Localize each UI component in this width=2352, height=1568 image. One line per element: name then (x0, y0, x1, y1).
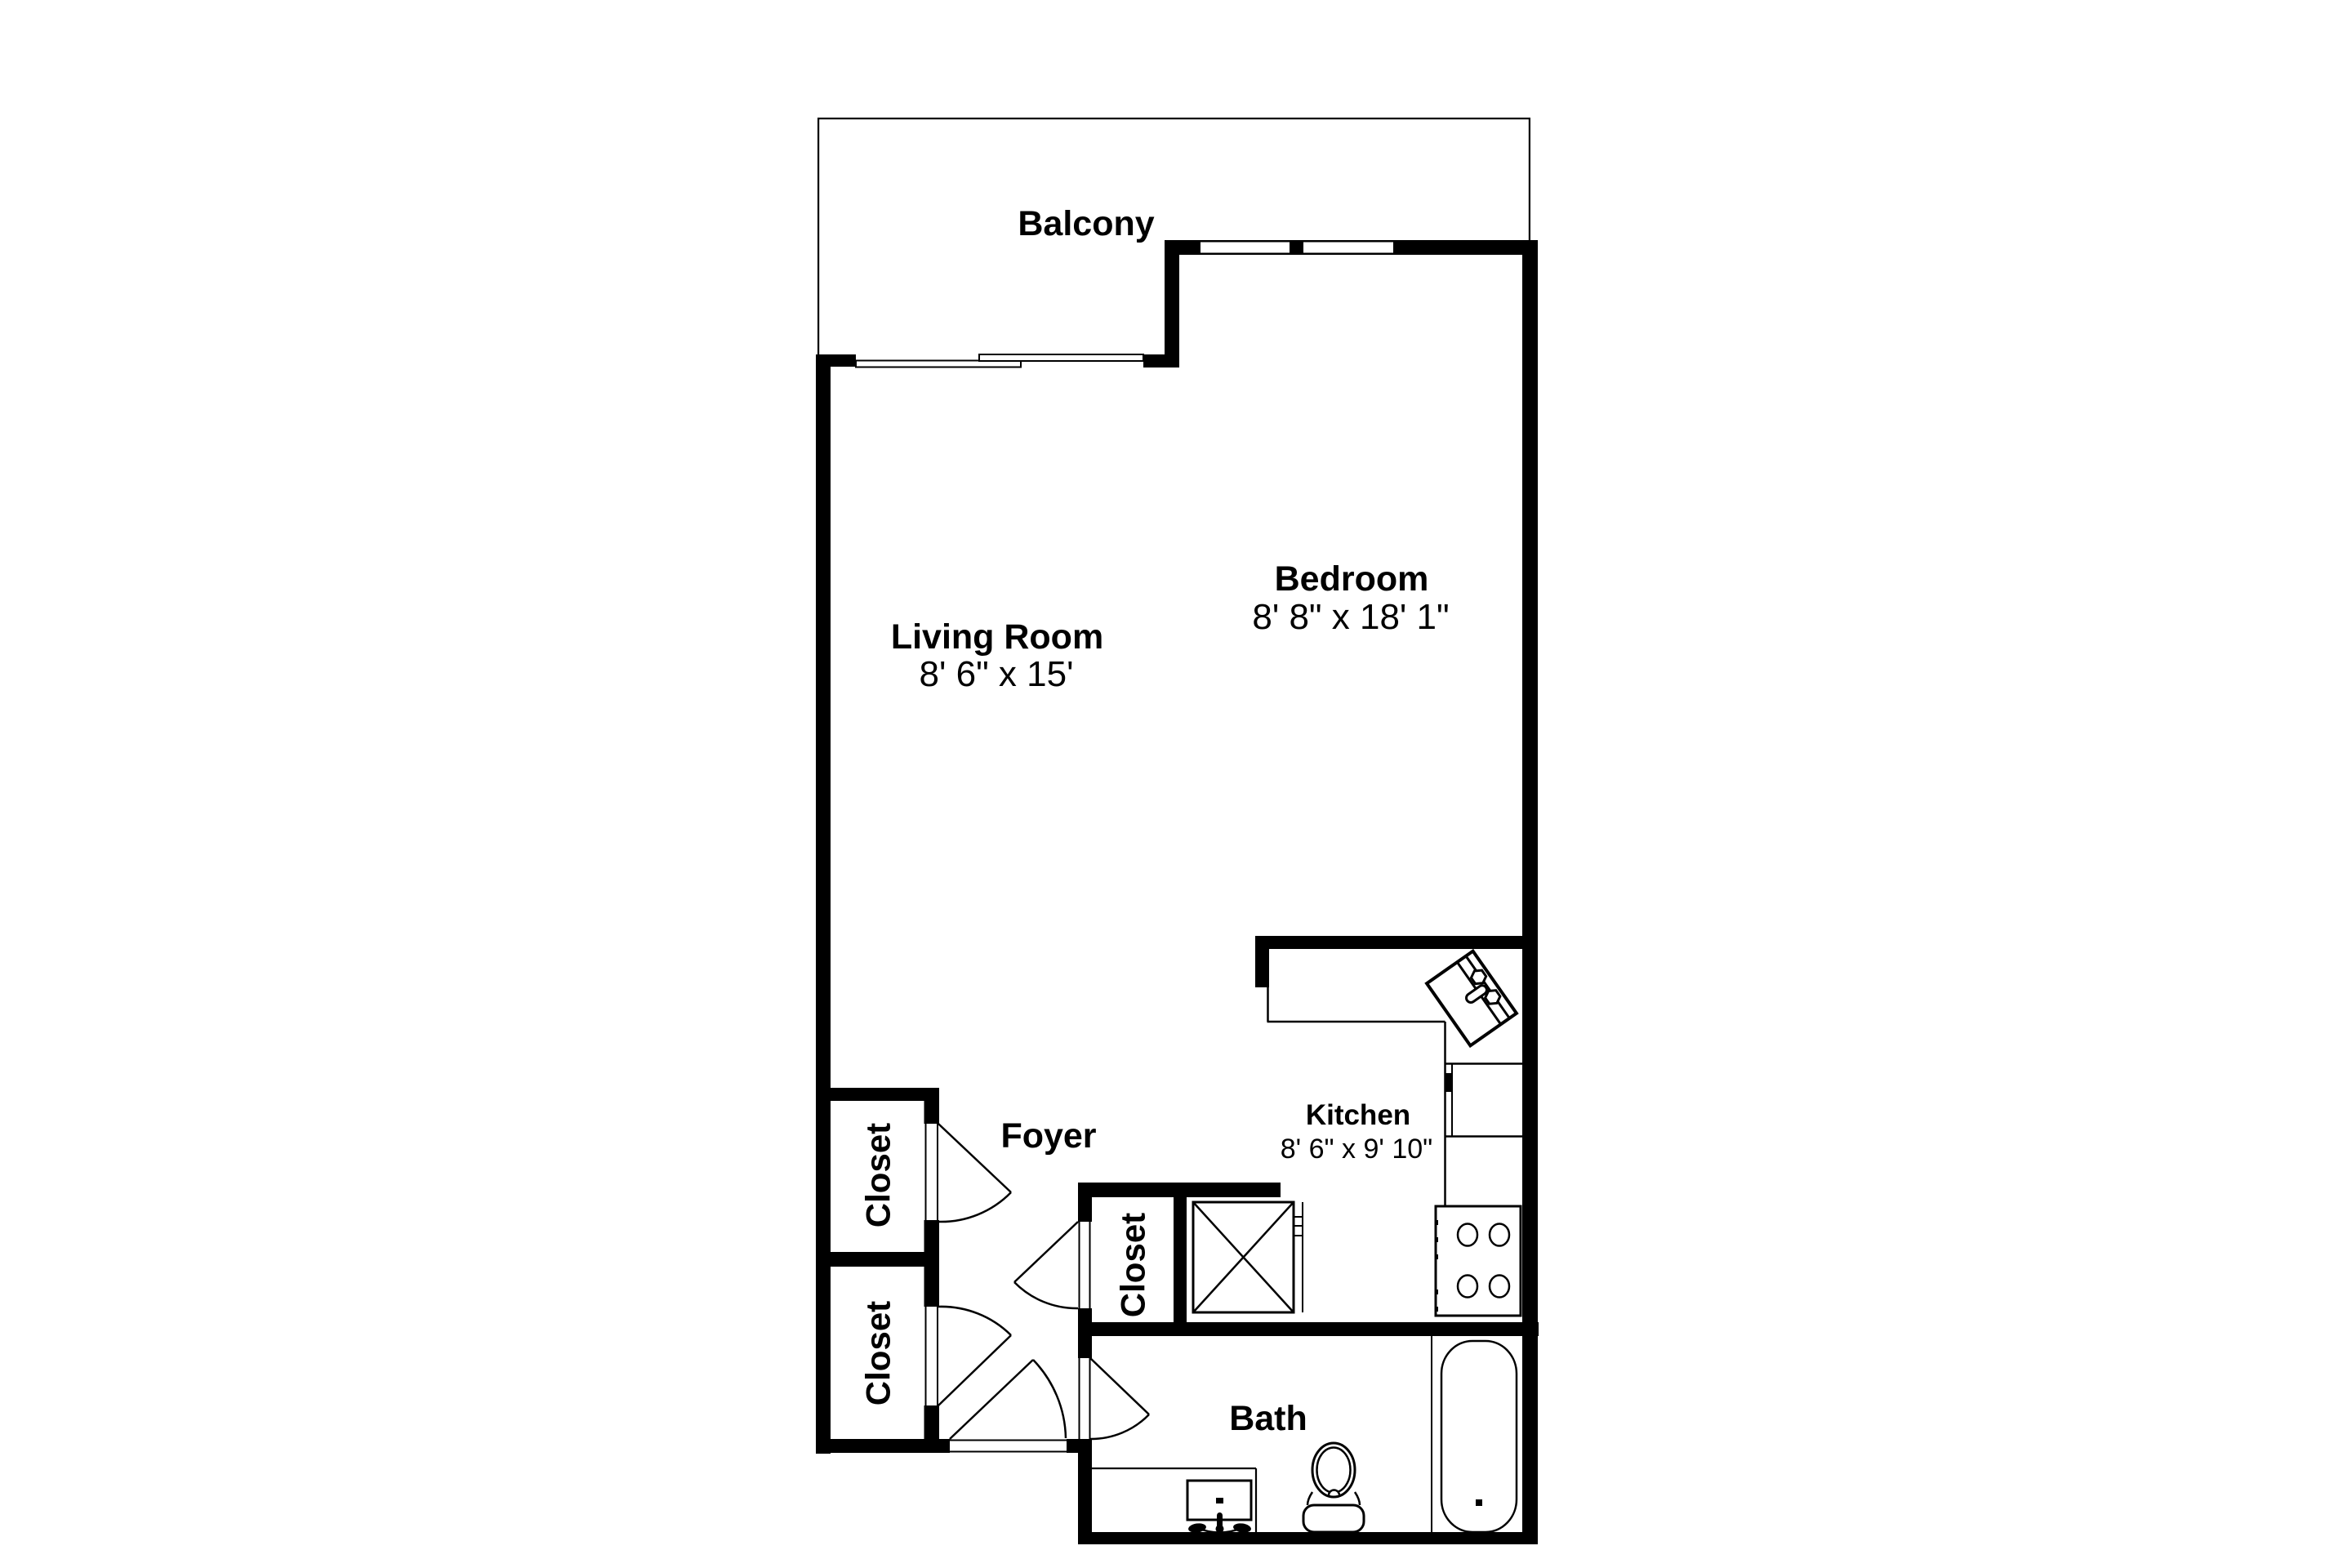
svg-text:Bedroom: Bedroom (1275, 559, 1429, 599)
svg-text:Living Room: Living Room (891, 617, 1103, 657)
svg-text:Foyer: Foyer (1000, 1116, 1096, 1156)
svg-text:Closet: Closet (859, 1301, 898, 1405)
svg-text:Closet: Closet (1114, 1213, 1152, 1317)
svg-text:Bath: Bath (1229, 1399, 1307, 1438)
svg-text:Kitchen: Kitchen (1306, 1099, 1410, 1131)
svg-text:8' 8" x 18' 1": 8' 8" x 18' 1" (1252, 597, 1449, 637)
svg-text:8' 6" x 15': 8' 6" x 15' (920, 654, 1074, 694)
svg-text:Closet: Closet (859, 1123, 898, 1227)
svg-text:Balcony: Balcony (1018, 204, 1154, 243)
svg-text:8' 6" x 9' 10": 8' 6" x 9' 10" (1281, 1134, 1432, 1165)
